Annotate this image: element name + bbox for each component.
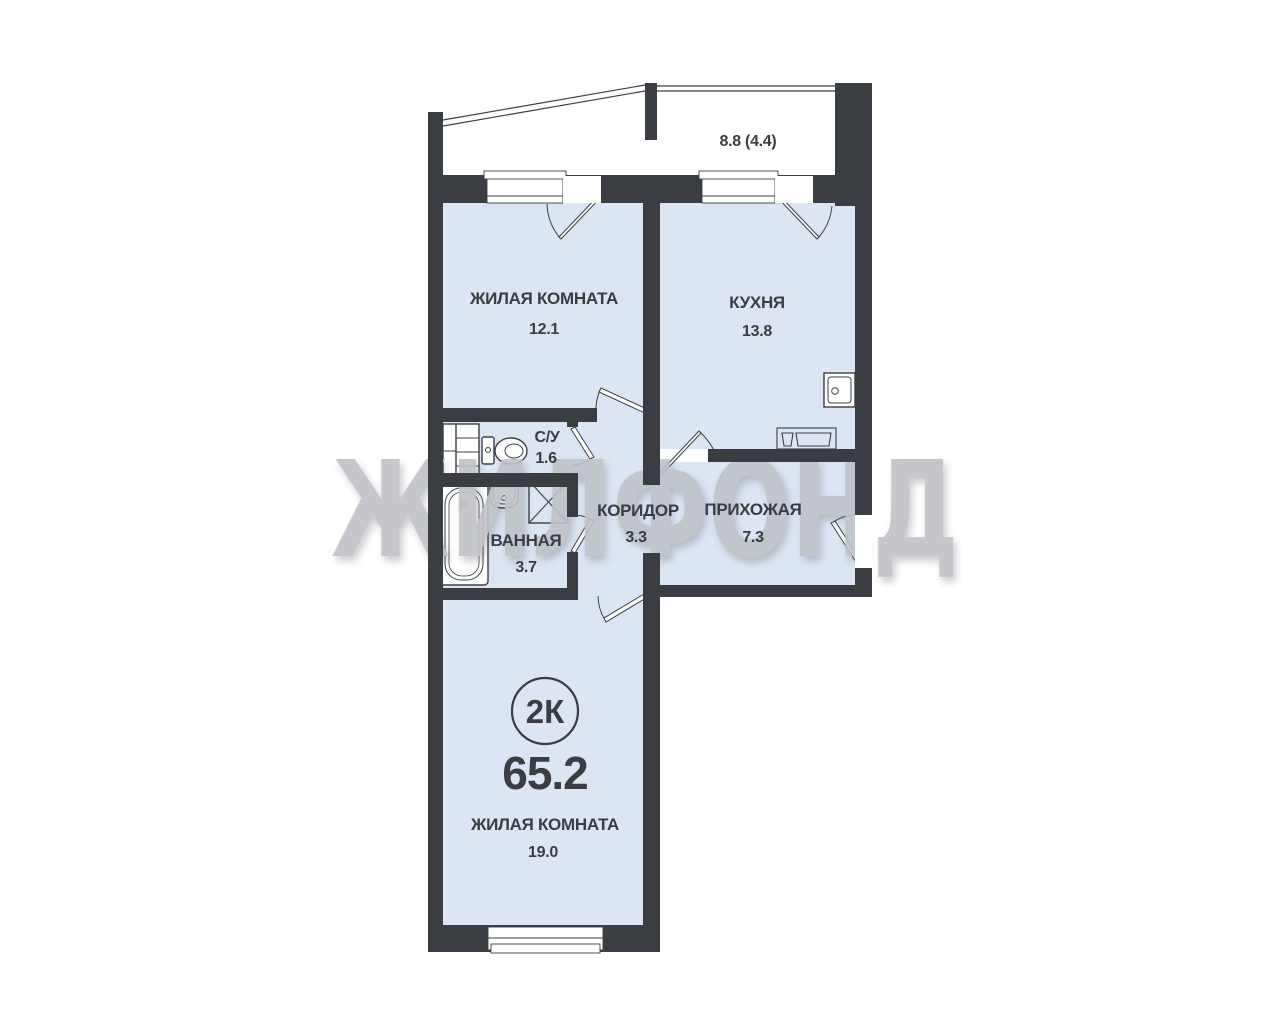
floorplan-svg: ЖИЛФОНД — [0, 0, 1280, 1024]
window-kitchen — [702, 176, 775, 203]
window-sill — [699, 171, 778, 179]
wall-balcony-right — [835, 83, 872, 206]
kitchen-name: КУХНЯ — [729, 293, 785, 312]
balcony-door-opening-room12 — [563, 176, 601, 203]
wc-name: С/У — [534, 429, 560, 446]
window-sill — [484, 171, 566, 179]
wall-kitchen-bottom — [708, 449, 857, 462]
kitchen-area: 13.8 — [742, 323, 772, 340]
total-area: 65.2 — [502, 747, 588, 799]
entrance-opening — [855, 515, 872, 568]
wall-bath-bottom — [443, 588, 578, 600]
type-badge: 2К — [526, 693, 565, 730]
wc-area: 1.6 — [535, 450, 557, 467]
balcony-area-label: 8.8 (4.4) — [720, 133, 777, 150]
bathroom-name: ВАННАЯ — [491, 531, 562, 550]
wall-room19-right — [643, 598, 660, 952]
room19-name: ЖИЛАЯ КОМНАТА — [470, 815, 619, 834]
balcony-glazing — [443, 85, 835, 126]
bathroom-area: 3.7 — [515, 559, 537, 576]
floorplan-page: ЖИЛФОНД — [0, 0, 1280, 1024]
wall-left — [428, 112, 443, 952]
balcony-door-opening-kitchen — [775, 176, 813, 203]
window-room12 — [487, 176, 563, 203]
wall-hallway-bottom — [643, 585, 872, 597]
wall-balcony-divider — [645, 83, 657, 140]
wall-bath-right-upper — [567, 487, 578, 517]
wall-wc-right-stub — [567, 408, 578, 427]
corridor-area: 3.3 — [625, 529, 647, 546]
room12-name: ЖИЛАЯ КОМНАТА — [469, 289, 618, 308]
hallway-area: 7.3 — [742, 529, 764, 546]
wall-wc-bath-divider — [443, 473, 578, 487]
room12-area: 12.1 — [529, 321, 559, 338]
room19-area: 19.0 — [528, 844, 558, 861]
corridor-name: КОРИДОР — [597, 501, 679, 520]
window-sill — [491, 944, 600, 953]
wall-central — [643, 203, 660, 485]
kitchen-sink-icon — [824, 373, 855, 407]
hallway-name: ПРИХОЖАЯ — [704, 500, 801, 519]
